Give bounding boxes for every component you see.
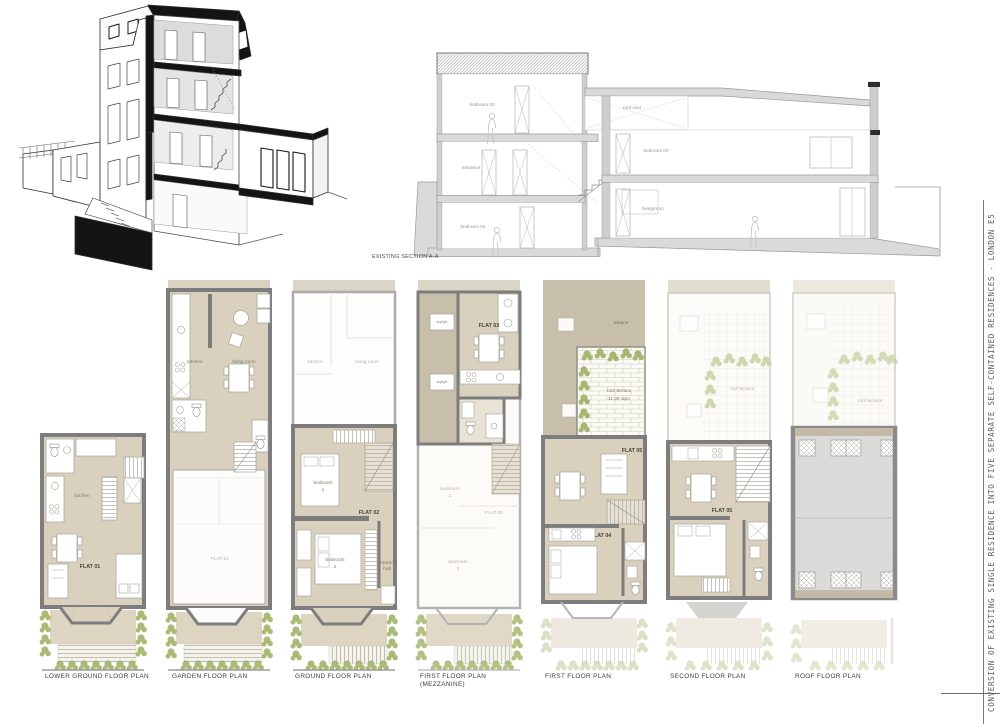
svg-text:2: 2	[334, 564, 337, 570]
plan-title: SECOND FLOOR PLAN	[670, 673, 746, 680]
label-roof-void: roof void	[623, 105, 641, 110]
plan-roof: roof terrace ROOF FLOOR PLAN	[789, 278, 915, 690]
plan-lower-ground: kitchen FLAT 01 LOWER GROUND FLOOR PLAN	[38, 278, 164, 690]
label-bedroom-02: bedroom 02	[469, 102, 494, 107]
label-skylight-1: skylight	[437, 320, 448, 324]
label-bedroom-03: bedroom 03	[643, 148, 668, 153]
label-bedroom-1: bedroom	[314, 480, 333, 486]
label-bedroom-2-ghost: bedroom	[449, 559, 468, 565]
label-kitchen: kitchen	[187, 359, 203, 365]
axon-massing	[19, 5, 347, 270]
label-flat-05: FLAT 05	[622, 448, 643, 454]
label-roof-terrace-ghost: roof terrace	[730, 386, 755, 392]
plan-first-floor: terrace roof terrace 11.95 sqm FLAT 05 F…	[539, 278, 665, 690]
label-living-ghost: living room	[355, 359, 378, 365]
plan-subtitle: (MEZZANINE)	[420, 681, 465, 688]
label-roof-terrace: roof terrace	[607, 388, 632, 394]
building: FLAT 05	[668, 442, 770, 618]
label-bedroom-1-ghost: bedroom	[441, 486, 460, 492]
building: terrace roof terrace 11.95 sqm FLAT 05 F…	[543, 280, 645, 618]
roof	[793, 428, 895, 598]
label-kitchen-ghost: kitchen	[307, 359, 323, 365]
svg-text:1: 1	[322, 487, 325, 493]
label-livingroom: livingroom	[642, 206, 663, 211]
garden-ghost	[666, 618, 773, 671]
svg-text:1: 1	[449, 493, 452, 499]
label-flat-02-ghost: FLAT 02	[485, 510, 503, 516]
section-title: EXISTING SECTION A-A	[372, 254, 439, 260]
label-bedroom-2: bedroom	[326, 557, 345, 563]
plan-title: FIRST FLOOR PLAN	[545, 673, 611, 680]
label-roof-terrace-area: 11.95 sqm	[608, 396, 630, 402]
label-flat-01-ghost: FLAT 01	[211, 556, 229, 562]
plan-title: GROUND FLOOR PLAN	[295, 673, 372, 680]
label-entrance-hall: entrance	[378, 560, 397, 566]
plan-garden-floor: FLAT 01 kitchen living room GARDEN FLOOR…	[164, 278, 290, 690]
plan-title: LOWER GROUND FLOOR PLAN	[45, 673, 149, 680]
label-living-room: living room	[232, 359, 255, 365]
section-drawing: bedroom 02 roof void entrance bedroom 03…	[370, 42, 975, 270]
label-flat-02: FLAT 02	[359, 510, 380, 516]
svg-text:hall: hall	[383, 566, 390, 572]
plan-first-floor-mezzanine: skylight skylight FLAT 03 bedroom 1 FLAT…	[414, 278, 540, 690]
svg-text:2: 2	[457, 566, 460, 572]
plan-second-floor: roof terrace FLAT 05 SECOND FLOOR PLAN	[664, 278, 790, 690]
building: kitchen living room bedroom 1 FLAT 02 be…	[293, 280, 397, 624]
project-title-vertical: CONVERSION OF EXISTING SINGLE RESIDENCE …	[987, 214, 996, 712]
garden-ghost	[541, 618, 648, 671]
label-flat-05: FLAT 05	[712, 508, 733, 514]
label-roof-terrace-ghost: roof terrace	[858, 398, 883, 404]
building: skylight skylight FLAT 03 bedroom 1 FLAT…	[418, 280, 520, 624]
label-terrace: terrace	[614, 320, 629, 325]
label-entrance: entrance	[462, 165, 481, 170]
label-bedroom-01: bedroom 01	[460, 224, 485, 229]
garden	[416, 614, 523, 671]
drawing-sheet: bedroom 02 roof void entrance bedroom 03…	[0, 0, 1000, 724]
garden-ghost	[791, 618, 892, 671]
building: kitchen FLAT 01	[42, 435, 144, 623]
label-kitchen: kitchen	[74, 493, 90, 499]
plan-ground-floor: kitchen living room bedroom 1 FLAT 02 be…	[289, 278, 415, 690]
axonometric-cutaway	[15, 2, 350, 274]
plan-title: GARDEN FLOOR PLAN	[172, 673, 248, 680]
plan-title: FIRST FLOOR PLAN	[420, 673, 486, 680]
terrace-ghost: roof terrace	[793, 280, 898, 428]
label-flat-01: FLAT 01	[80, 564, 101, 570]
terrace-ghost: roof terrace	[668, 280, 772, 442]
label-flat-03: FLAT 03	[479, 323, 500, 329]
label-skylight-2: skylight	[437, 380, 448, 384]
building: FLAT 01 kitchen living room	[168, 280, 270, 624]
plan-title: ROOF FLOOR PLAN	[795, 673, 861, 680]
